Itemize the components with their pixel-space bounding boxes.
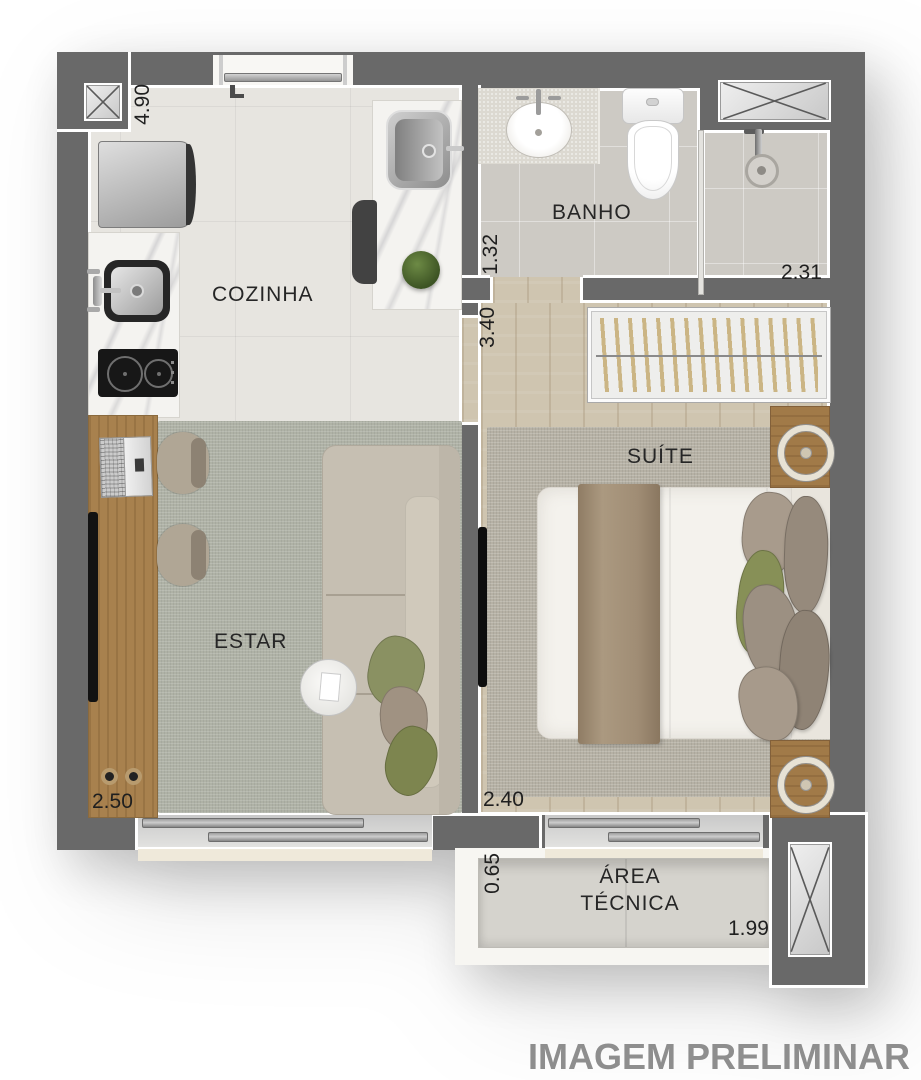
shower-glass-partition bbox=[698, 130, 704, 295]
shaft-symbol-top-right bbox=[718, 80, 831, 122]
island-sink bbox=[386, 110, 452, 190]
dimension-1-32: 1.32 bbox=[479, 234, 503, 275]
floor-plan-page: COZINHA BANHO SUÍTE ESTAR ÁREA TÉCNICA 4… bbox=[0, 0, 921, 1080]
cooktop-burner bbox=[107, 356, 143, 392]
nightstand-decor-ring bbox=[778, 757, 834, 813]
chair-backrest bbox=[191, 530, 206, 580]
toilet-tank bbox=[622, 88, 684, 124]
living-sliding-door bbox=[138, 815, 432, 847]
nightstand bbox=[770, 740, 830, 818]
suite-tv bbox=[478, 527, 487, 687]
dimension-4-90: 4.90 bbox=[131, 84, 155, 125]
suite-sliding-door bbox=[545, 815, 763, 847]
shaft-x-icon bbox=[86, 85, 120, 119]
bed-blanket bbox=[578, 484, 660, 744]
sliding-panel bbox=[208, 832, 428, 842]
dimension-0-65: 0.65 bbox=[481, 853, 505, 894]
entry-door-jamb-right bbox=[343, 55, 347, 85]
closet bbox=[588, 308, 830, 402]
label-banho: BANHO bbox=[552, 201, 632, 225]
dimension-2-50: 2.50 bbox=[92, 790, 133, 814]
entry-door-jamb-left bbox=[219, 55, 223, 85]
bathroom-door-opening bbox=[490, 277, 583, 303]
sliding-panel bbox=[142, 818, 364, 828]
kitchen-sink-drain bbox=[132, 286, 142, 296]
label-cozinha: COZINHA bbox=[212, 283, 314, 307]
closet-rod bbox=[596, 355, 822, 357]
cooktop-controls bbox=[171, 361, 174, 385]
kitchen-faucet-handle bbox=[87, 307, 100, 312]
toilet-flush-button bbox=[646, 98, 659, 106]
label-area-tecnica-line1: ÁREA bbox=[540, 863, 720, 890]
shower-drain bbox=[745, 154, 779, 188]
floor-plan: COZINHA BANHO SUÍTE ESTAR ÁREA TÉCNICA 4… bbox=[0, 0, 921, 1080]
shaft-x-icon bbox=[720, 82, 829, 120]
living-door-sill bbox=[138, 847, 432, 861]
sliding-panel bbox=[608, 832, 760, 842]
laptop-trackpad bbox=[135, 458, 144, 471]
shaft-symbol-top-left bbox=[84, 83, 122, 121]
island-sink-basin bbox=[395, 119, 443, 181]
chair-backrest bbox=[191, 438, 206, 488]
plant bbox=[402, 251, 440, 289]
toilet-bowl bbox=[627, 120, 679, 200]
bathroom-faucet-handle bbox=[548, 96, 561, 100]
nightstand-decor-ring bbox=[778, 425, 834, 481]
shaft-symbol-bottom-right bbox=[788, 842, 832, 957]
nightstand bbox=[770, 406, 830, 488]
island-stool bbox=[352, 200, 377, 284]
side-table bbox=[300, 659, 357, 716]
dimension-1-99: 1.99 bbox=[728, 917, 769, 941]
dimension-3-40: 3.40 bbox=[476, 307, 500, 348]
side-table-book bbox=[319, 672, 341, 702]
label-estar: ESTAR bbox=[214, 630, 287, 654]
kitchen-faucet-handle bbox=[87, 269, 100, 274]
entry-door-leaf bbox=[224, 73, 342, 82]
wall-bathroom-bottom-left bbox=[462, 275, 490, 303]
label-area-tecnica-line2: TÉCNICA bbox=[540, 890, 720, 917]
sliding-panel bbox=[548, 818, 700, 828]
living-tv bbox=[88, 512, 98, 702]
shaft-x-icon bbox=[790, 844, 830, 955]
cooktop bbox=[98, 349, 178, 397]
entry-door-handle-bar bbox=[230, 94, 244, 98]
laptop bbox=[99, 436, 153, 496]
label-suite: SUÍTE bbox=[627, 445, 694, 469]
island-faucet bbox=[446, 146, 464, 151]
cup bbox=[101, 768, 118, 785]
dimension-2-40: 2.40 bbox=[483, 788, 524, 812]
wall-block-bottom-middle bbox=[430, 813, 542, 850]
wall-block-bottom-left bbox=[88, 813, 138, 850]
label-area-tecnica: ÁREA TÉCNICA bbox=[540, 863, 720, 917]
cup bbox=[125, 768, 142, 785]
bathroom-faucet-handle bbox=[516, 96, 529, 100]
bathroom-faucet bbox=[536, 89, 541, 115]
desk-chair bbox=[157, 524, 209, 586]
cooktop-burner bbox=[144, 359, 173, 388]
bathroom-sink-drain bbox=[535, 129, 542, 136]
kitchen-faucet-spout bbox=[100, 288, 121, 293]
watermark-text: IMAGEM PRELIMINAR bbox=[510, 1036, 910, 1078]
dimension-2-31: 2.31 bbox=[781, 261, 822, 285]
toilet-seat bbox=[634, 126, 672, 191]
duvet-seam bbox=[669, 488, 671, 738]
refrigerator bbox=[98, 141, 192, 228]
island-sink-drain bbox=[424, 146, 434, 156]
sofa-backrest bbox=[439, 446, 460, 814]
desk-chair bbox=[157, 432, 209, 494]
